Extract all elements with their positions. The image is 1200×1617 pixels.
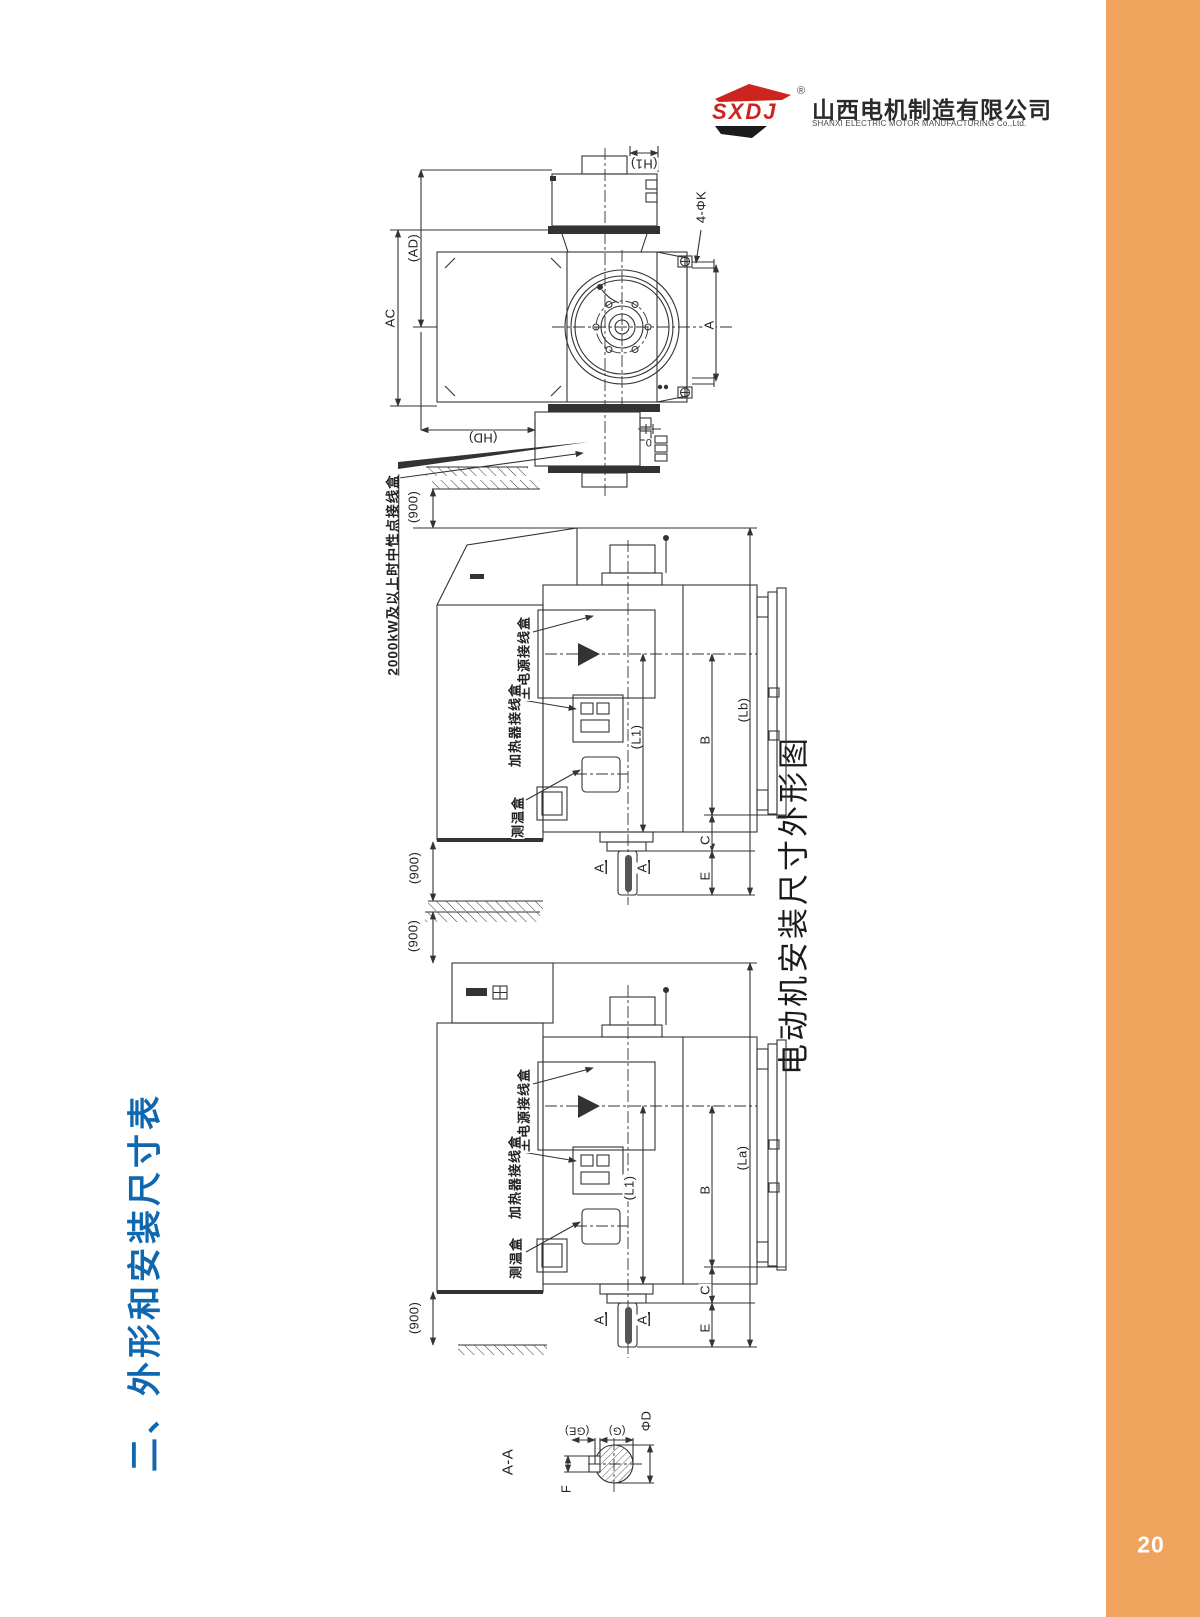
dim-label-4-phik: 4-ΦK (695, 190, 708, 224)
dim-label-phid: ΦD (640, 1410, 653, 1433)
section-mark-a2-mid: A (636, 862, 649, 873)
section-aa-title: A-A (501, 1448, 516, 1476)
label-heater-box-low: 加热器接线盒 (509, 1134, 522, 1220)
label-temp-box-low: 测温盒 (510, 1236, 523, 1280)
dim-label-900-low-top: (900) (407, 919, 420, 953)
logo-brand-text: SXDJ (712, 99, 777, 124)
catalog-page: 20 SXDJ ® 山西电机制造有限公司 SHANXI ELECTRIC MOT… (0, 0, 1200, 1617)
dim-label-e-low: E (699, 1322, 712, 1333)
sxdj-logo: SXDJ (705, 80, 805, 140)
logo-blade-shape (715, 126, 767, 138)
dim-label-ad: (AD) (407, 233, 420, 263)
dim-label-h1: (H1) (630, 158, 659, 171)
dim-label-hd: (HD) (467, 432, 498, 445)
dim-label-a: A (703, 319, 716, 330)
dim-label-e-mid: E (699, 870, 712, 881)
section-aa-view (564, 1438, 654, 1492)
dim-label-900-mid-bottom: (900) (408, 851, 421, 885)
dim-label-900-mid-top: (900) (407, 490, 420, 524)
label-heater-box-mid: 加热器接线盒 (509, 682, 522, 768)
dim-label-c-low: C (699, 1284, 712, 1296)
section-title: 二、外形和安装尺寸表 (118, 1092, 167, 1472)
dim-label-l1-low: (L1) (623, 1175, 636, 1202)
dim-label-f: F (560, 1484, 573, 1494)
dim-label-g: (G) (607, 1425, 626, 1436)
page-number: 20 (1137, 1532, 1165, 1559)
section-mark-a1-mid: A (593, 862, 606, 873)
dim-label-la: (La) (736, 1145, 749, 1172)
dim-label-c-mid: C (699, 834, 712, 846)
section-mark-a1-low: A (593, 1314, 606, 1325)
dim-label-ac: AC (384, 308, 397, 329)
end-view (390, 146, 732, 497)
label-temp-box-mid: 测温盒 (512, 795, 525, 839)
accent-strip (1106, 0, 1200, 1617)
dim-label-b-low: B (699, 1184, 712, 1195)
note-neutral-box: 2000kW及以上时中性点接线盒 (386, 473, 400, 676)
dim-label-ge: (GE) (564, 1425, 591, 1436)
dim-label-lb: (Lb) (737, 697, 750, 724)
company-name-en: SHANXI ELECTRIC MOTOR MANUFACTURING Co.,… (812, 119, 1026, 128)
dim-label-900-low-bottom: (900) (408, 1301, 421, 1335)
side-view-lower (425, 912, 786, 1358)
registered-mark: ® (797, 85, 805, 97)
dim-label-b-mid: B (699, 734, 712, 745)
side-view-middle (413, 480, 786, 911)
dim-label-zero: 0 (645, 439, 654, 450)
section-mark-a2-low: A (636, 1314, 649, 1325)
dim-label-l1-mid: (L1) (630, 724, 643, 751)
